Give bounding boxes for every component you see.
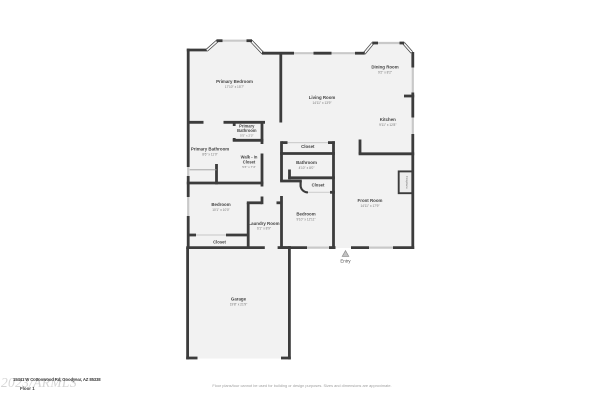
- svg-text:14'11" x 17'9": 14'11" x 17'9": [360, 204, 379, 208]
- svg-text:Closet: Closet: [213, 240, 226, 245]
- svg-text:Bathroom: Bathroom: [296, 160, 317, 165]
- svg-text:Closet: Closet: [312, 183, 325, 188]
- svg-text:Primary Bathroom: Primary Bathroom: [191, 146, 229, 151]
- svg-text:4'10" x 8'0": 4'10" x 8'0": [299, 166, 315, 170]
- svg-text:Entry: Entry: [340, 259, 351, 264]
- svg-text:10'1" x 10'0": 10'1" x 10'0": [212, 208, 229, 212]
- svg-text:Laundry Room: Laundry Room: [249, 221, 280, 226]
- svg-text:9'10" x 12'11": 9'10" x 12'11": [296, 218, 315, 222]
- svg-text:5'5" x 2'3": 5'5" x 2'3": [240, 134, 254, 138]
- svg-text:Bedroom: Bedroom: [296, 212, 315, 217]
- svg-text:Closet: Closet: [301, 144, 315, 149]
- svg-text:9'11" x 12'8": 9'11" x 12'8": [379, 123, 396, 127]
- svg-text:17'10" x 15'7": 17'10" x 15'7": [225, 85, 244, 89]
- svg-text:8'6" x 11'0": 8'6" x 11'0": [202, 152, 217, 156]
- svg-text:Living Room: Living Room: [309, 95, 336, 100]
- svg-text:Fireplace: Fireplace: [405, 176, 409, 189]
- svg-text:Closet: Closet: [243, 159, 256, 164]
- svg-text:Garage: Garage: [231, 297, 247, 302]
- svg-text:Front Room: Front Room: [358, 198, 383, 203]
- svg-text:5'3" x 7'4": 5'3" x 7'4": [242, 165, 256, 169]
- svg-text:Bathroom: Bathroom: [237, 128, 257, 133]
- svg-text:19'8" x 21'9": 19'8" x 21'9": [230, 302, 247, 306]
- svg-text:Dining Room: Dining Room: [371, 65, 398, 70]
- svg-text:Bedroom: Bedroom: [211, 202, 230, 207]
- svg-text:Kitchen: Kitchen: [380, 117, 396, 122]
- svg-text:9'2" x 8'2": 9'2" x 8'2": [378, 71, 392, 75]
- svg-text:14'11" x 13'9": 14'11" x 13'9": [312, 101, 331, 105]
- svg-text:Primary Bedroom: Primary Bedroom: [216, 79, 253, 84]
- svg-text:6'1" x 8'9": 6'1" x 8'9": [257, 227, 271, 231]
